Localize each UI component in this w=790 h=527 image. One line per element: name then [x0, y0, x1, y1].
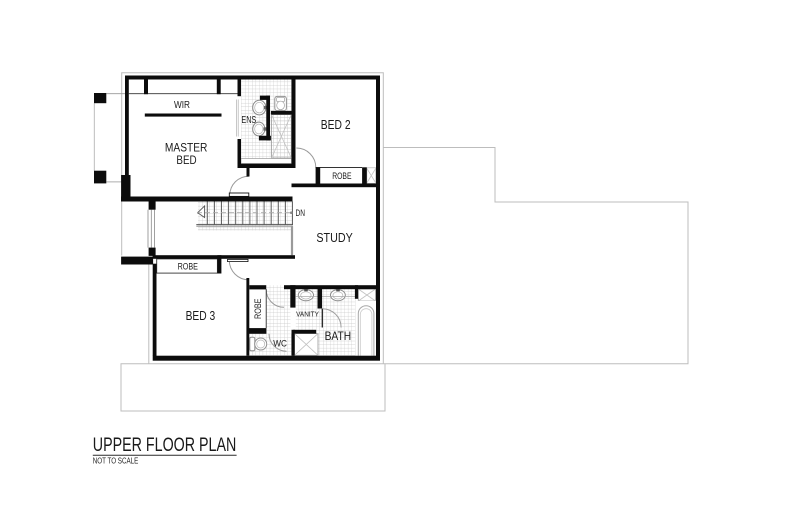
- svg-text:UPPER FLOOR PLAN: UPPER FLOOR PLAN: [93, 434, 237, 456]
- svg-text:ROBE: ROBE: [253, 299, 264, 320]
- svg-text:ENS: ENS: [241, 114, 256, 126]
- svg-text:BED: BED: [176, 155, 196, 167]
- svg-text:BED 3: BED 3: [186, 309, 216, 323]
- svg-text:WC: WC: [273, 338, 287, 348]
- svg-text:WIR: WIR: [174, 99, 190, 111]
- svg-text:BED 2: BED 2: [321, 118, 351, 132]
- svg-text:ROBE: ROBE: [332, 171, 351, 182]
- svg-text:MASTER: MASTER: [165, 143, 208, 155]
- svg-text:STUDY: STUDY: [316, 231, 353, 245]
- svg-text:VANITY: VANITY: [296, 311, 319, 318]
- svg-text:ROBE: ROBE: [178, 262, 198, 273]
- svg-text:NOT TO SCALE: NOT TO SCALE: [93, 455, 139, 465]
- svg-text:DN: DN: [296, 208, 306, 218]
- svg-text:BATH: BATH: [325, 329, 352, 343]
